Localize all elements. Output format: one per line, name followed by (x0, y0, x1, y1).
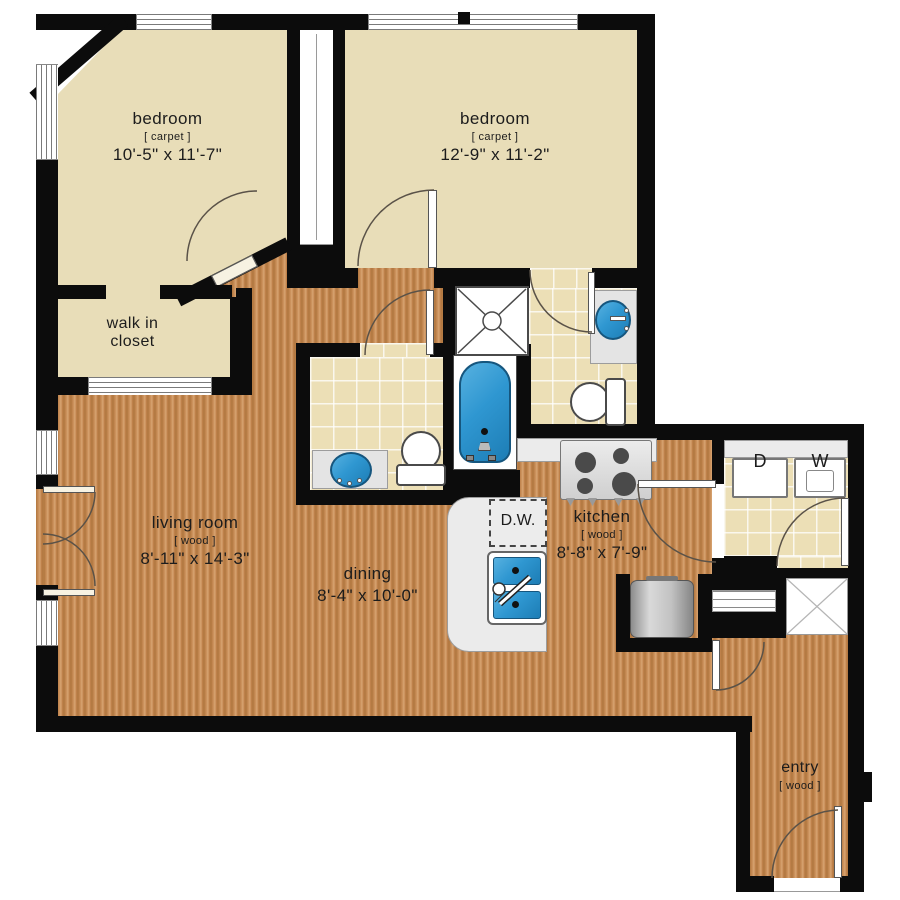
washer-label: W (794, 450, 846, 474)
french-door-leaf (43, 486, 95, 493)
tub-drain (481, 428, 488, 435)
room-dimensions: 12'-9" x 11'-2" (395, 144, 595, 166)
faucet-spout (347, 481, 352, 486)
room-material: [ wood ] (522, 528, 682, 542)
window (136, 14, 212, 30)
range (560, 440, 652, 500)
wall (578, 14, 655, 30)
closet-rod (316, 34, 317, 240)
burner (575, 452, 596, 473)
washer-text: W (812, 451, 829, 471)
dryer-label: D (732, 450, 788, 474)
bedroom-2-door (428, 190, 437, 268)
wall (616, 638, 712, 652)
wall (287, 30, 300, 245)
room-dimensions: 8'-11" x 14'-3" (95, 548, 295, 570)
room-material: [ wood ] (95, 534, 295, 548)
wall (736, 728, 750, 878)
wall (712, 578, 776, 590)
wall (212, 14, 368, 30)
hall-door (712, 640, 720, 690)
dining-label: dining 8'-4" x 10'-0" (275, 563, 460, 607)
room-name: bedroom (395, 108, 595, 130)
entry-door (834, 806, 842, 878)
exterior-area (655, 0, 864, 424)
exterior-area (864, 0, 900, 900)
window (36, 430, 58, 475)
bedroom-1-label: bedroom [ carpet ] 10'-5" x 11'-7" (70, 108, 265, 166)
entry-label: entry [ wood ] (752, 758, 848, 793)
burner (613, 448, 629, 464)
wall (160, 285, 232, 299)
toilet-tank (605, 378, 626, 426)
wall (212, 377, 244, 395)
wall (36, 160, 58, 430)
room-material: [ wood ] (752, 779, 848, 793)
room-name: living room (95, 512, 295, 534)
laundry-door (841, 498, 849, 566)
shower-stall (455, 286, 529, 356)
dryer-text: D (754, 451, 767, 471)
bath-2-door (426, 290, 434, 355)
living-room-label: living room [ wood ] 8'-11" x 14'-3" (95, 512, 295, 570)
french-door-opening (36, 489, 58, 587)
french-door-leaf (43, 589, 95, 596)
kitchen-door (638, 480, 716, 488)
burner (577, 478, 593, 494)
kitchen-label: kitchen [ wood ] 8'-8" x 7'-9" (522, 506, 682, 564)
wall (637, 30, 655, 432)
room-name: closet (65, 333, 200, 351)
floor-plan: D.W. D W (0, 0, 900, 900)
bedroom-2-label: bedroom [ carpet ] 12'-9" x 11'-2" (395, 108, 595, 166)
room-material: [ carpet ] (395, 130, 595, 144)
wall (434, 268, 530, 288)
window-mullion (458, 12, 470, 24)
room-dimensions: 10'-5" x 11'-7" (70, 144, 265, 166)
wall (56, 377, 88, 395)
room-dimensions: 8'-8" x 7'-9" (522, 542, 682, 564)
wall (517, 357, 531, 437)
refrigerator (630, 580, 694, 638)
wall (448, 470, 520, 497)
wall (616, 574, 630, 644)
wall (712, 558, 724, 578)
room-name: dining (275, 563, 460, 585)
wall (698, 574, 712, 638)
room-dimensions: 8'-4" x 10'-0" (275, 585, 460, 607)
window (36, 64, 58, 160)
wall (724, 568, 850, 578)
walk-in-closet-label: walk in closet (65, 315, 200, 352)
master-bath-door (588, 272, 595, 334)
tub-handle (488, 455, 496, 461)
wall (56, 285, 106, 299)
room-name: entry (752, 758, 848, 779)
wall (736, 876, 774, 892)
room-name: bedroom (70, 108, 265, 130)
wall (776, 578, 786, 638)
burner (612, 472, 636, 496)
window (368, 14, 578, 30)
wall (345, 268, 358, 288)
closet-opening (106, 285, 160, 299)
window (36, 600, 58, 646)
faucet-handle (337, 478, 342, 483)
room-name: walk in (65, 315, 200, 333)
wall (848, 440, 864, 876)
room-name: kitchen (522, 506, 682, 528)
refrigerator-handle (646, 576, 678, 581)
bath-2-door-gap (360, 343, 430, 357)
utility-shaft (786, 578, 848, 635)
wall (36, 716, 752, 732)
linen-shelf (712, 590, 776, 612)
wall (296, 343, 310, 505)
faucet-handle (624, 308, 629, 313)
faucet-spout (610, 316, 626, 321)
exterior-area (0, 732, 750, 900)
sink-drain (512, 567, 519, 574)
interior-window (88, 377, 212, 395)
wall (333, 30, 345, 245)
wall (712, 612, 776, 638)
wall (712, 440, 724, 484)
wall (852, 772, 872, 802)
exterior-area (736, 892, 866, 900)
tub-handle (466, 455, 474, 461)
faucet-handle (624, 326, 629, 331)
wall (592, 268, 655, 288)
faucet-handle (357, 478, 362, 483)
toilet-bowl (570, 382, 610, 422)
kitchen-door-opening (712, 484, 724, 558)
sink-drain (512, 601, 519, 608)
wall (287, 245, 345, 288)
toilet-tank (396, 464, 446, 486)
master-bath-door-gap (530, 268, 592, 288)
entry-door-opening (774, 878, 840, 892)
wall (840, 876, 864, 892)
room-material: [ carpet ] (70, 130, 265, 144)
